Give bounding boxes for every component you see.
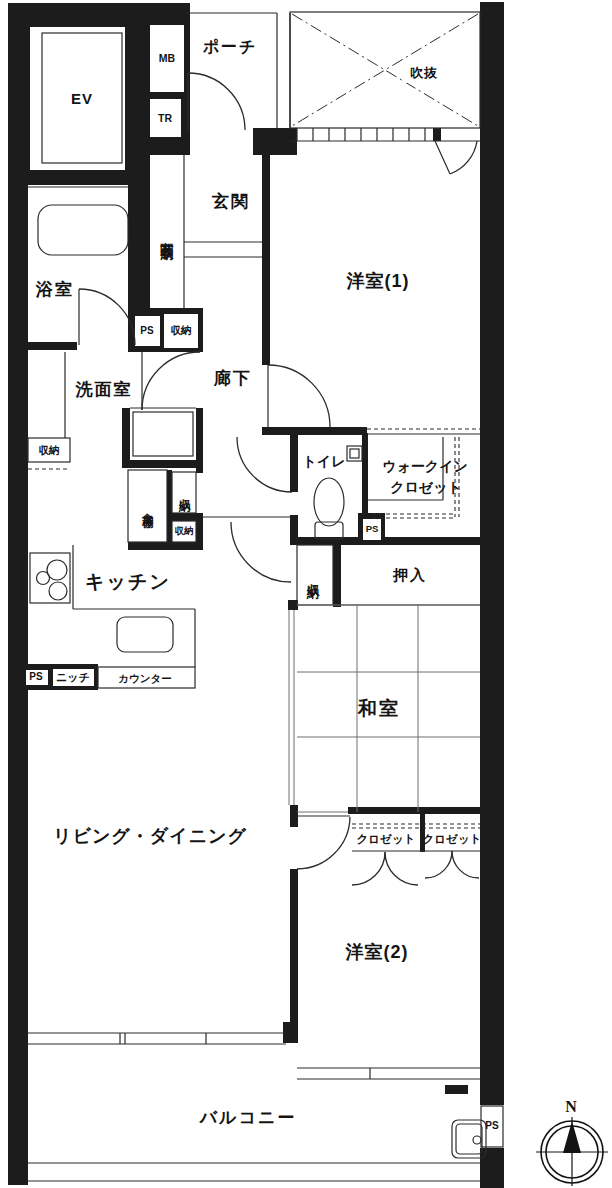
room-label-genkan-storage: 玄関収納: [161, 231, 174, 239]
room-label-living: リビング・ダイニング: [53, 827, 247, 845]
label-closet1: クロゼット: [357, 834, 416, 846]
room-label-balcony: バルコニー: [200, 1109, 297, 1126]
compass-needle: [563, 1121, 581, 1153]
label-storage-wash: 収納: [39, 445, 60, 456]
floor-plan: EV MB TR ポーチ 吹抜 玄関 玄関収納 浴室 PS 収納 洗面室 収納 …: [0, 0, 612, 1188]
label-storage-k2: 収納: [175, 526, 194, 536]
room-label-western1: 洋室(1): [347, 272, 410, 290]
label-counter: カウンター: [118, 673, 171, 684]
room-label-oshiire: 押入: [393, 567, 427, 582]
room-label-bathroom: 浴室: [36, 281, 74, 298]
room-label-corridor: 廊下: [214, 370, 252, 387]
room-label-wic-line2: クロゼット: [390, 480, 462, 494]
compass-rose: [536, 1117, 608, 1186]
label-niche: ニッチ: [56, 672, 90, 683]
label-cupboard: 食器棚: [141, 504, 153, 510]
room-label-genkan: 玄関: [212, 193, 250, 210]
room-label-kitchen: キッチン: [85, 572, 171, 591]
void-cross: [292, 14, 478, 126]
label-storage-k1: 収納: [178, 490, 190, 494]
room-label-washroom: 洗面室: [76, 381, 133, 398]
label-closet2: クロゼット: [423, 834, 482, 846]
room-label-porch: ポーチ: [203, 39, 258, 55]
room-label-washitsu: 和室: [358, 699, 400, 718]
label-storage-top: 収納: [171, 325, 192, 336]
walls: [8, 2, 504, 1188]
room-label-western2: 洋室(2): [346, 943, 409, 961]
label-ps3: PS: [29, 672, 42, 682]
label-ps2: PS: [366, 524, 379, 534]
room-label-ev: EV: [71, 91, 93, 106]
room-label-wic-line1: ウォークイン: [382, 459, 468, 473]
floorplan-drawing: [0, 0, 612, 1188]
label-storage-mid: 収納: [307, 574, 320, 578]
room-label-void: 吹抜: [410, 66, 438, 79]
label-ps1: PS: [140, 326, 153, 336]
room-label-mb: MB: [159, 53, 175, 64]
compass-north-label: N: [565, 1099, 577, 1115]
room-label-tr: TR: [158, 113, 172, 124]
room-label-toilet: トイレ: [303, 454, 346, 468]
label-ps4: PS: [485, 1121, 498, 1131]
